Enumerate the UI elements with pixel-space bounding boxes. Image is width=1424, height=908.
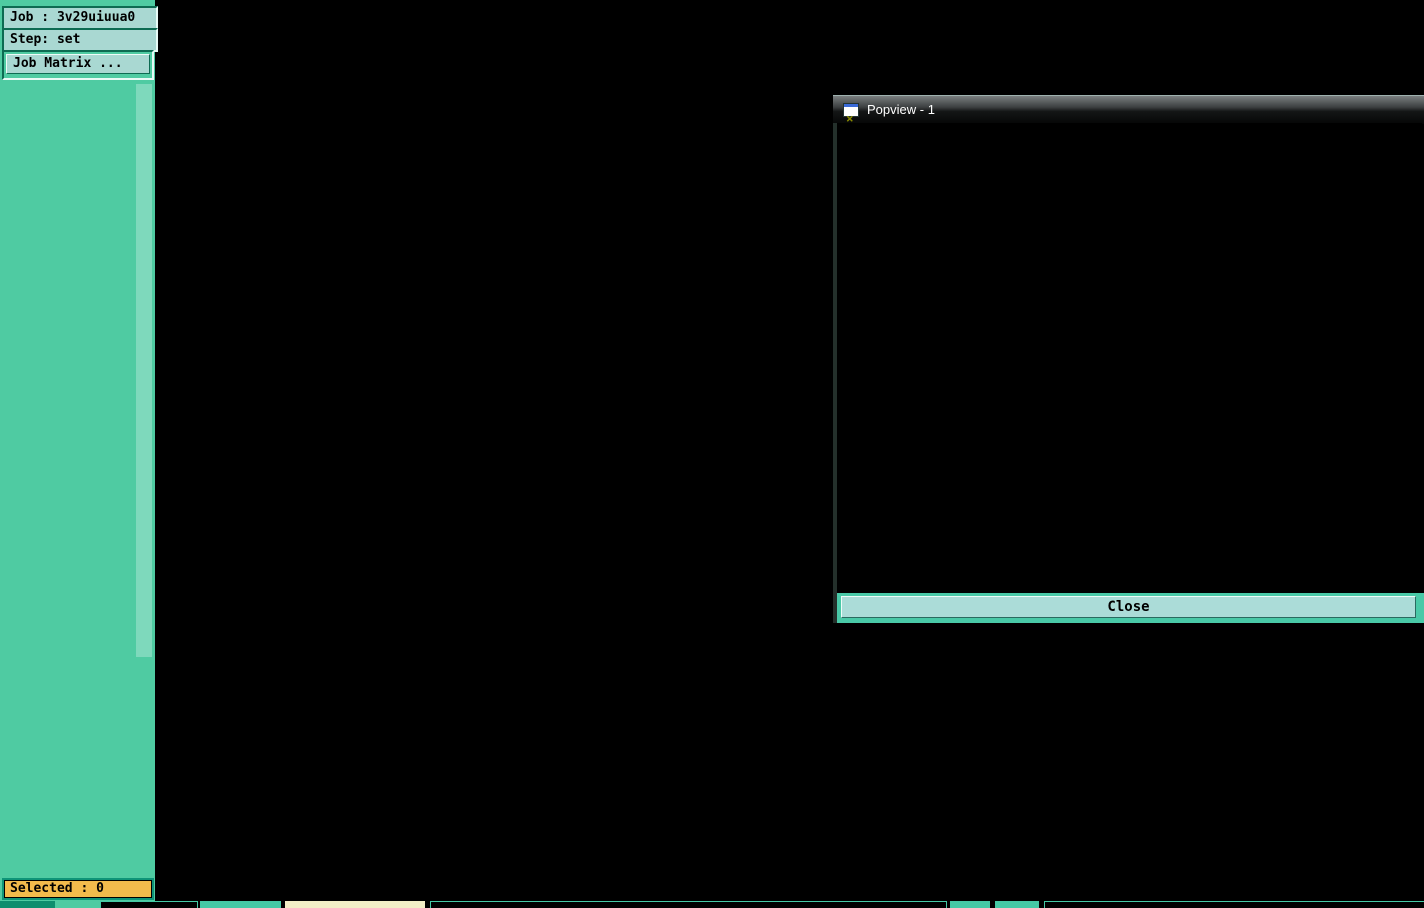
popview-title: Popview - 1: [867, 102, 935, 117]
job-matrix-frame: Job Matrix ...: [2, 50, 154, 80]
popview-window: Popview - 1 Close: [833, 95, 1424, 623]
statusbar-segment: [995, 901, 1039, 908]
statusbar-segment: [0, 901, 55, 908]
app-window: { "sidebar": { "job_label": "Job : 3v29u…: [0, 0, 1424, 908]
layer-scroll-band[interactable]: [136, 84, 152, 657]
statusbar-segment: [100, 901, 198, 908]
selected-status: Selected : 0: [2, 878, 154, 900]
popview-titlebar[interactable]: Popview - 1: [833, 95, 1424, 124]
statusbar-segment: [285, 901, 425, 908]
sidebar: Job : 3v29uiuua0 Step: set Job Matrix ..…: [0, 0, 155, 908]
window-x-icon: [843, 103, 859, 117]
job-field: Job : 3v29uiuua0: [2, 6, 158, 30]
popview-close-bar: Close: [833, 593, 1424, 623]
statusbar-segment: [430, 901, 947, 908]
statusbar-segment: [950, 901, 990, 908]
statusbar-segment: [200, 901, 281, 908]
job-matrix-button[interactable]: Job Matrix ...: [6, 54, 150, 74]
close-button[interactable]: Close: [841, 596, 1416, 618]
statusbar-segment: [1044, 901, 1424, 908]
popview-canvas[interactable]: [833, 123, 1422, 593]
step-field: Step: set: [2, 28, 158, 52]
